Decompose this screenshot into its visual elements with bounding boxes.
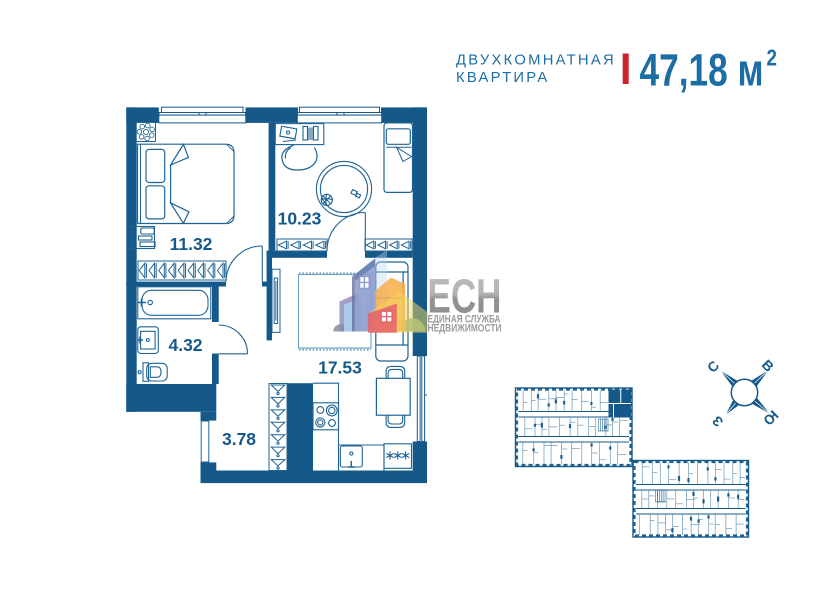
svg-text:ДВУХКОМНАТНАЯ: ДВУХКОМНАТНАЯ bbox=[456, 53, 616, 69]
svg-text:КВАРТИРА: КВАРТИРА bbox=[456, 70, 550, 86]
svg-text:2: 2 bbox=[767, 44, 777, 71]
svg-text:47,18 м: 47,18 м bbox=[640, 44, 764, 95]
svg-text:17.53: 17.53 bbox=[318, 358, 362, 378]
svg-text:3.78: 3.78 bbox=[222, 429, 256, 449]
svg-text:11.32: 11.32 bbox=[170, 234, 213, 254]
svg-text:НЕДВИЖИМОСТИ: НЕДВИЖИМОСТИ bbox=[428, 323, 502, 335]
svg-text:4.32: 4.32 bbox=[168, 335, 202, 355]
svg-text:10.23: 10.23 bbox=[278, 209, 322, 229]
